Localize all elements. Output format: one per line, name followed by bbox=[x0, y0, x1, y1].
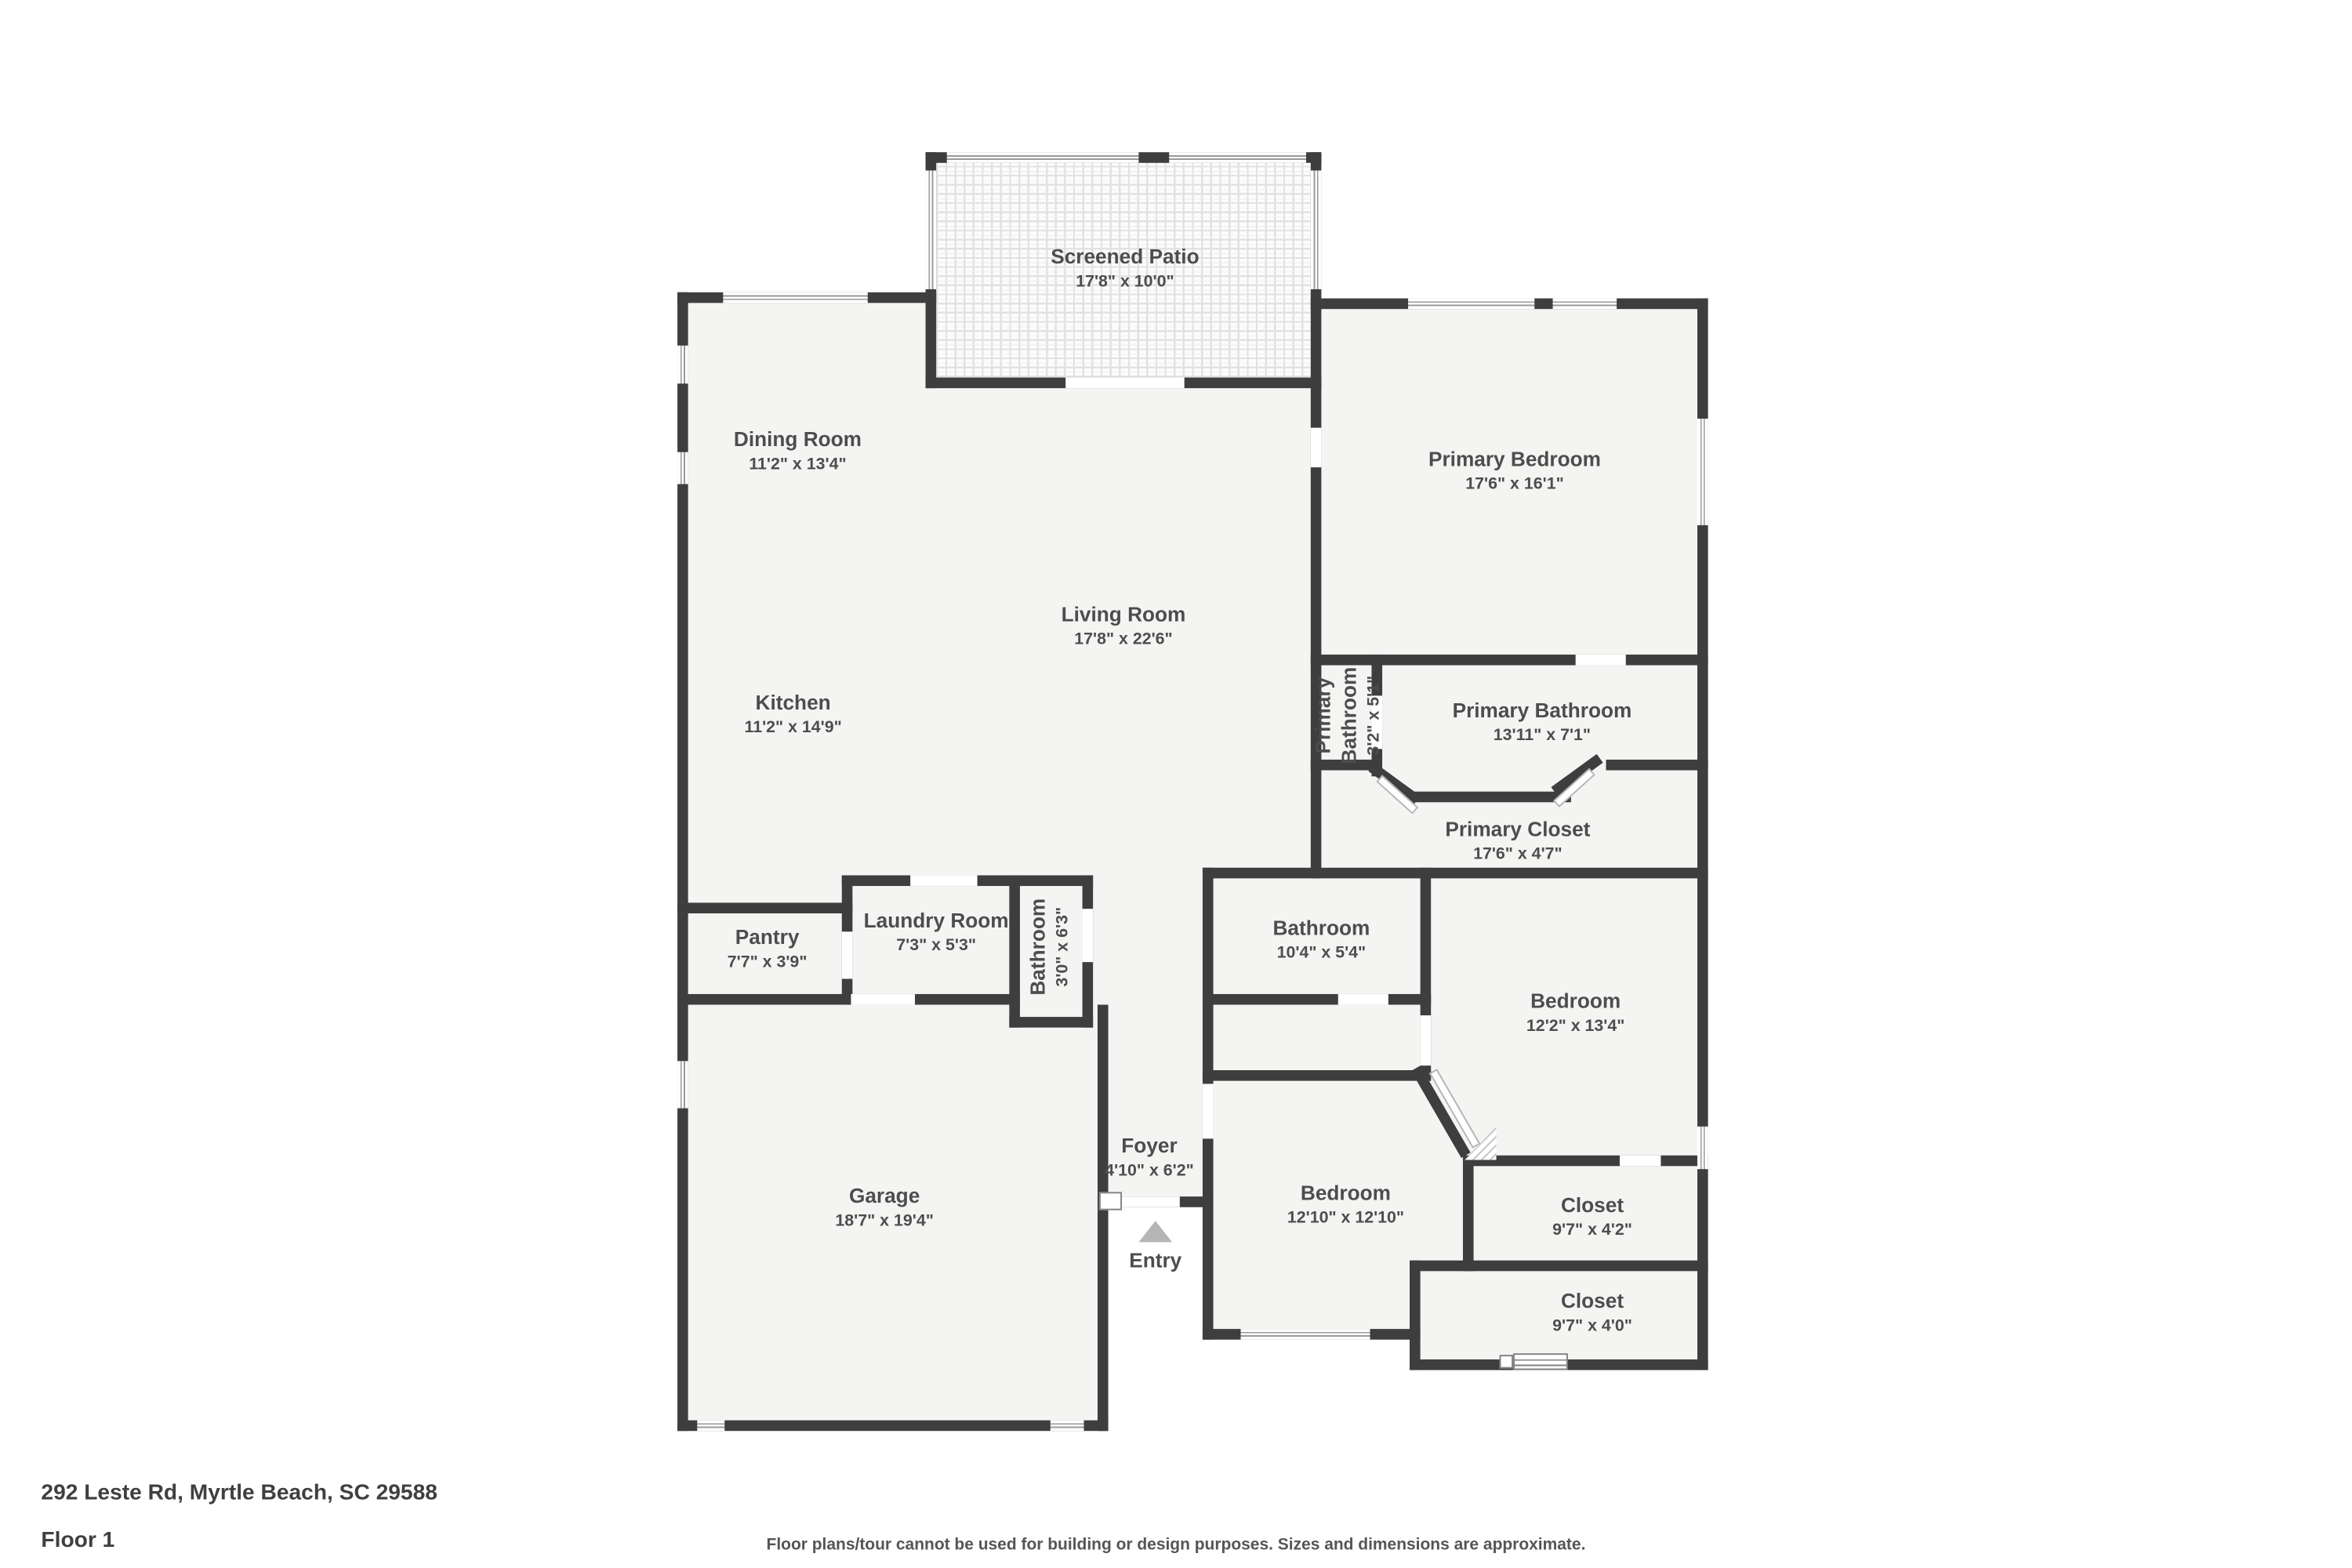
wall bbox=[1203, 994, 1431, 1005]
door-opening bbox=[851, 994, 915, 1005]
door-opening bbox=[1203, 1083, 1214, 1138]
window bbox=[1169, 152, 1306, 163]
entry-label: Entry bbox=[1129, 1249, 1181, 1275]
wall bbox=[1463, 1156, 1708, 1167]
room-label-bedroom-right: Bedroom 12'2" x 13'4" bbox=[1526, 989, 1624, 1038]
door-opening bbox=[1338, 994, 1388, 1005]
room-label-living-room: Living Room 17'8" x 22'6" bbox=[1062, 603, 1186, 652]
room-dims: 9'7" x 4'2" bbox=[1552, 1219, 1632, 1242]
room-dims: 4'10" x 6'2" bbox=[1105, 1160, 1194, 1183]
window bbox=[677, 346, 688, 384]
window bbox=[1408, 299, 1534, 310]
room-fill bbox=[688, 303, 1311, 886]
wall bbox=[1410, 1261, 1421, 1370]
room-name: Pantry bbox=[728, 926, 808, 952]
room-name: Foyer bbox=[1105, 1134, 1194, 1160]
door-opening bbox=[1311, 428, 1322, 467]
room-dims: 3'0" x 6'3" bbox=[1052, 898, 1075, 996]
wall bbox=[677, 902, 852, 913]
door-opening bbox=[910, 875, 977, 886]
room-label-primary-closet: Primary Closet 17'6" x 4'7" bbox=[1445, 818, 1590, 866]
window bbox=[1697, 1127, 1708, 1169]
room-label-garage: Garage 18'7" x 19'4" bbox=[835, 1185, 933, 1233]
wall bbox=[1203, 868, 1708, 879]
room-name: Bathroom bbox=[1273, 916, 1370, 942]
wall bbox=[677, 1421, 1109, 1432]
room-label-bathroom-small: Bathroom 3'0" x 6'3" bbox=[1026, 898, 1075, 996]
exterior-area bbox=[1214, 1340, 1410, 1432]
room-name: Screened Patio bbox=[1051, 245, 1199, 271]
room-name: Closet bbox=[1552, 1194, 1632, 1220]
window bbox=[1697, 419, 1708, 525]
room-label-laundry-room: Laundry Room 7'3" x 5'3" bbox=[864, 909, 1009, 957]
room-name: Laundry Room bbox=[864, 909, 1009, 935]
wall bbox=[1410, 1261, 1708, 1272]
room-dims: 17'6" x 16'1" bbox=[1428, 474, 1601, 496]
room-dims: 3'2" x 5'1" bbox=[1363, 656, 1386, 775]
room-name: Primary Bedroom bbox=[1428, 448, 1601, 474]
room-name: Bedroom bbox=[1287, 1181, 1404, 1207]
address-text: 292 Leste Rd, Myrtle Beach, SC 29588 bbox=[41, 1481, 437, 1505]
wall bbox=[1098, 1005, 1109, 1432]
wall bbox=[1413, 792, 1571, 803]
room-dims: 13'11" x 7'1" bbox=[1453, 724, 1632, 747]
window bbox=[1553, 299, 1617, 310]
door-opening bbox=[1065, 378, 1184, 389]
room-dims: 12'2" x 13'4" bbox=[1526, 1015, 1624, 1038]
floor-plan: Screened Patio 17'8" x 10'0" Dining Room… bbox=[0, 0, 2352, 1568]
door-opening bbox=[1117, 1196, 1180, 1207]
room-name: Primary Bathroom bbox=[1453, 699, 1632, 725]
room-dims: 11'2" x 14'9" bbox=[744, 717, 841, 740]
entry-arrow-icon bbox=[1138, 1221, 1172, 1242]
room-label-closet-upper: Closet 9'7" x 4'2" bbox=[1552, 1194, 1632, 1243]
room-dims: 7'3" x 5'3" bbox=[864, 935, 1009, 957]
window bbox=[947, 152, 1139, 163]
window bbox=[1240, 1329, 1370, 1340]
room-label-kitchen: Kitchen 11'2" x 14'9" bbox=[744, 691, 841, 740]
window bbox=[1051, 1421, 1084, 1432]
room-dims: 11'2" x 13'4" bbox=[734, 454, 862, 477]
room-name: Living Room bbox=[1062, 603, 1186, 629]
room-label-dining-room: Dining Room 11'2" x 13'4" bbox=[734, 428, 862, 477]
door-opening bbox=[1083, 909, 1094, 962]
room-label-primary-bedroom: Primary Bedroom 17'6" x 16'1" bbox=[1428, 448, 1601, 496]
room-label-screened-patio: Screened Patio 17'8" x 10'0" bbox=[1051, 245, 1199, 294]
room-name: Dining Room bbox=[734, 428, 862, 454]
window bbox=[677, 1061, 688, 1108]
door-opening bbox=[1421, 1015, 1432, 1065]
room-dims: 12'10" x 12'10" bbox=[1287, 1207, 1404, 1230]
wall bbox=[1606, 760, 1708, 771]
entry-door-icon bbox=[1099, 1192, 1122, 1210]
room-name: Garage bbox=[835, 1185, 933, 1210]
room-dims: 17'6" x 4'7" bbox=[1445, 844, 1590, 866]
floor-label: Floor 1 bbox=[41, 1528, 114, 1552]
room-dims: 17'8" x 22'6" bbox=[1062, 629, 1186, 652]
door-opening bbox=[1576, 655, 1626, 666]
room-dims: 7'7" x 3'9" bbox=[728, 952, 808, 975]
room-label-foyer: Foyer 4'10" x 6'2" bbox=[1105, 1134, 1194, 1183]
door-opening bbox=[1620, 1156, 1661, 1167]
window bbox=[697, 1421, 724, 1432]
disclaimer-text: Floor plans/tour cannot be used for buil… bbox=[767, 1536, 1586, 1554]
room-dims: 10'4" x 5'4" bbox=[1273, 942, 1370, 965]
room-name: Bathroom bbox=[1026, 898, 1052, 996]
window bbox=[723, 292, 867, 303]
window bbox=[677, 452, 688, 485]
room-label-closet-lower: Closet 9'7" x 4'0" bbox=[1552, 1290, 1632, 1338]
room-label-pantry: Pantry 7'7" x 3'9" bbox=[728, 926, 808, 975]
closet-door-icon bbox=[1513, 1353, 1568, 1370]
room-label-bathroom: Bathroom 10'4" x 5'4" bbox=[1273, 916, 1370, 965]
exterior-area bbox=[1410, 1370, 1708, 1432]
room-dims: 18'7" x 19'4" bbox=[835, 1210, 933, 1233]
window bbox=[926, 170, 937, 289]
window bbox=[1311, 170, 1322, 289]
room-name: Primary Closet bbox=[1445, 818, 1590, 844]
room-name: Closet bbox=[1552, 1290, 1632, 1316]
door-opening bbox=[842, 931, 853, 978]
room-name: Kitchen bbox=[744, 691, 841, 717]
wall bbox=[1009, 1017, 1093, 1028]
room-label-bedroom-bottom: Bedroom 12'10" x 12'10" bbox=[1287, 1181, 1404, 1230]
wall bbox=[1203, 1070, 1431, 1081]
room-dims: 17'8" x 10'0" bbox=[1051, 271, 1199, 294]
room-name: Primary Bathroom bbox=[1312, 656, 1363, 775]
room-name: Bedroom bbox=[1526, 989, 1624, 1015]
door-hinge-icon bbox=[1500, 1355, 1513, 1368]
wall bbox=[677, 994, 1020, 1005]
entry-text: Entry bbox=[1129, 1249, 1181, 1275]
room-dims: 9'7" x 4'0" bbox=[1552, 1316, 1632, 1338]
room-label-primary-bathroom: Primary Bathroom 13'11" x 7'1" bbox=[1453, 699, 1632, 748]
room-label-primary-bathroom-wc: Primary Bathroom 3'2" x 5'1" bbox=[1312, 656, 1385, 775]
wall bbox=[1463, 1156, 1474, 1272]
